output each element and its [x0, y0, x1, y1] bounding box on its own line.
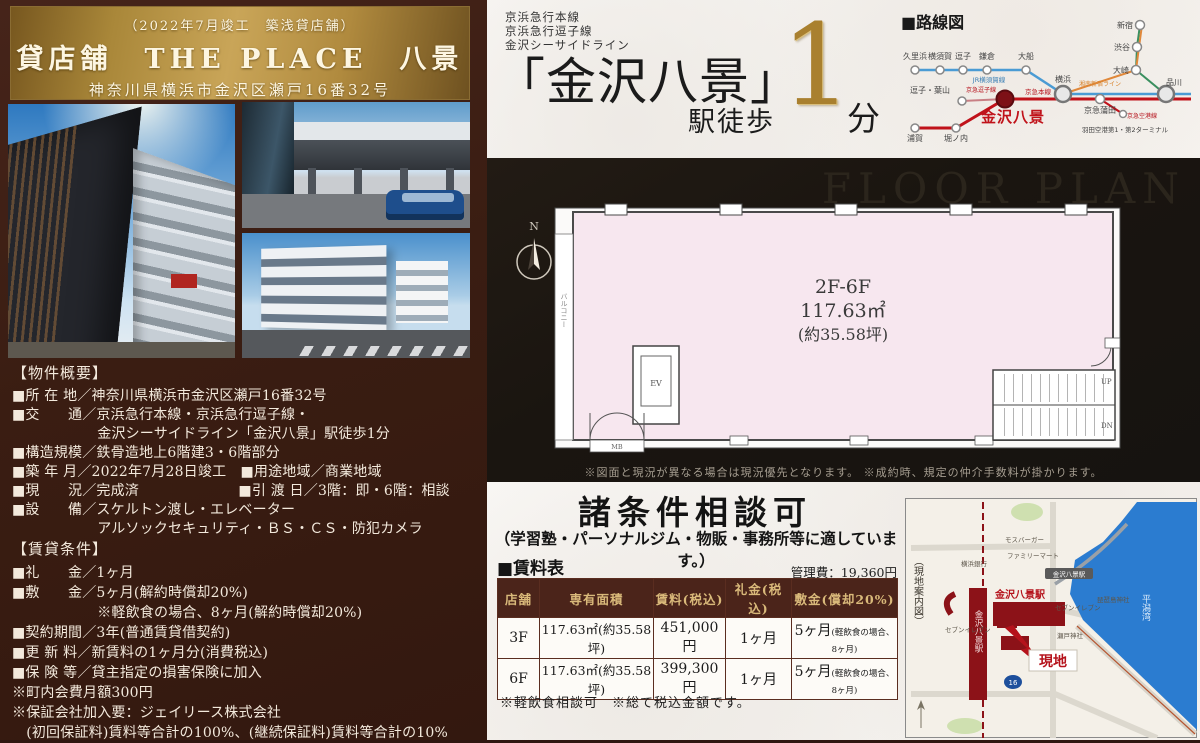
completion-note: （2022年7月竣工 築浅貸店舗） [11, 15, 469, 34]
kanazawa-hakkei-dot [997, 91, 1014, 108]
svg-text:117.63㎡: 117.63㎡ [800, 299, 885, 322]
cell-rent: 451,000円 [654, 618, 726, 659]
svg-text:横須賀: 横須賀 [928, 51, 952, 61]
property-overview-section: 【物件概要】 ■所 在 地／神奈川県横浜市金沢区瀬戸16番32号 ■交 通／京浜… [12, 362, 482, 539]
svg-text:逗子: 逗子 [955, 52, 971, 61]
svg-text:堀ノ内: 堀ノ内 [944, 133, 968, 143]
zushi-line-label: 京急逗子線 [966, 86, 996, 94]
walk-label: 駅徒歩 [688, 100, 775, 139]
svg-text:瀬戸神社: 瀬戸神社 [1057, 631, 1084, 640]
overview-line: ■現 況／完成済 ■引 渡 日／3階：即・6階：相談 [12, 482, 482, 501]
kanazawa-hakkei-label: 金沢八景 [980, 108, 1045, 126]
overview-line: ■構造規模／鉄骨造地上6階建3・6階部分 [12, 444, 482, 463]
stairs-up-label: UP [1101, 378, 1112, 386]
terms-line: ■敷 金／5ヶ月(解約時償却20%) [12, 583, 482, 603]
site-label: 現地 [1039, 653, 1067, 670]
station-building-band [272, 122, 470, 140]
overview-line: ■交 通／京浜急行本線・京浜急行逗子線・ [12, 406, 482, 425]
tower-louvers [8, 124, 80, 358]
floor-plan-panel: FLOOR PLAN N バルコニ [487, 158, 1200, 482]
walk-minutes-unit: 分 [847, 92, 880, 140]
svg-text:横浜銀行: 横浜銀行 [961, 559, 988, 568]
floorplan-disclaimer: ※図面と現況が異なる場合は現況優先となります。 ※成約時、規定の仲介手数料が掛か… [487, 464, 1200, 480]
rent-table-header-row: 店舗 専有面積 賃料(税込) 礼金(税込) 敷金(償却20%) [498, 579, 898, 618]
site-building-shape [997, 616, 1017, 628]
main-line-label: 京急本線 [1025, 87, 1052, 96]
cell-deposit: 5ヶ月(軽飲食の場合、8ヶ月) [792, 659, 898, 700]
station-label: 金沢八景駅 [994, 588, 1046, 601]
entry-opening [1105, 338, 1120, 348]
property-photo-station [242, 102, 470, 228]
svg-text:セブンイレブン: セブンイレブン [1055, 603, 1101, 612]
overview-line: 金沢シーサイドライン「金沢八景」駅徒歩1分 [12, 425, 482, 444]
col-rent: 賃料(税込) [654, 579, 726, 618]
svg-text:渋谷: 渋谷 [1114, 42, 1130, 52]
mb-label: MB [611, 443, 623, 451]
property-title-plate: （2022年7月竣工 築浅貸店舗） 貸店舗 THE PLACE 八景 神奈川県横… [10, 6, 470, 100]
cell-floor: 3F [498, 618, 540, 659]
overview-line: ■築 年 月／2022年7月28日竣工 ■用途地域／商業地域 [12, 463, 482, 482]
overview-line: アルソックセキュリティ・ＢＳ・ＣＳ・防犯カメラ [12, 520, 482, 539]
car-windows [402, 193, 454, 202]
balcony-label: バルコニー [560, 293, 568, 328]
deposit-months: 5ヶ月 [795, 623, 832, 639]
elevator-label: EV [650, 379, 662, 388]
terms-line: ■保 険 等／貸主指定の損害保険に加入 [12, 663, 482, 683]
table-row: 3F 117.63㎡(約35.58坪) 451,000円 1ヶ月 5ヶ月(軽飲食… [498, 618, 898, 659]
svg-text:京急蒲田: 京急蒲田 [1084, 105, 1116, 115]
svg-text:新宿: 新宿 [1117, 20, 1133, 30]
property-photo-streetview [242, 233, 470, 358]
airport-line-label: 京急空港線 [1127, 112, 1157, 120]
col-keymoney: 礼金(税込) [726, 579, 792, 618]
office-building-shape [261, 245, 386, 331]
stair-flight-upper [1001, 374, 1107, 402]
stair-flight-lower [1001, 408, 1107, 436]
deposit-months: 5ヶ月 [795, 664, 832, 680]
access-header-strip: 京浜急行本線 京浜急行逗子線 金沢シーサイドライン 「金沢八景」 駅徒歩 1 分… [487, 0, 1200, 158]
street-ground [8, 342, 235, 358]
svg-text:鎌倉: 鎌倉 [979, 51, 995, 61]
shinagawa-hub-dot [1158, 86, 1174, 102]
svg-text:浦賀: 浦賀 [907, 133, 923, 143]
bay-label: 平潟湾 [1140, 594, 1151, 622]
terms-line: ■礼 金／1ヶ月 [12, 563, 482, 583]
svg-text:モスバーガー: モスバーガー [1005, 535, 1044, 544]
route-shield-number: 16 [1009, 679, 1018, 687]
overview-line: ■所 在 地／神奈川県横浜市金沢区瀬戸16番32号 [12, 387, 482, 406]
overview-title: 【物件概要】 [12, 362, 482, 383]
cell-area: 117.63㎡(約35.58坪) [540, 618, 654, 659]
left-panel: （2022年7月竣工 築浅貸店舗） 貸店舗 THE PLACE 八景 神奈川県横… [0, 0, 487, 740]
svg-text:ファミリーマート: ファミリーマート [1007, 552, 1059, 560]
deposit-note: (軽飲食の場合、8ヶ月) [832, 669, 895, 696]
rent-table: 店舗 専有面積 賃料(税込) 礼金(税込) 敷金(償却20%) 3F 117.6… [497, 578, 898, 700]
route-map: ■路線図 久里浜 横須賀 逗子 鎌倉 [893, 2, 1198, 152]
cell-keymoney: 1ヶ月 [726, 618, 792, 659]
svg-text:大船: 大船 [1018, 51, 1034, 61]
compass-north-label: N [529, 220, 539, 233]
svg-text:琵琶島神社: 琵琶島神社 [1097, 595, 1130, 604]
col-area: 専有面積 [540, 579, 654, 618]
adjacent-building-shape [133, 148, 235, 358]
yokohama-hub-dot [1055, 86, 1071, 102]
conditions-strip: 諸条件相談可 （学習塾・パーソナルジム・物販・事務所等に適しています。） ■賃料… [487, 482, 1200, 740]
svg-text:逗子・葉山: 逗子・葉山 [910, 85, 950, 95]
cell-deposit: 5ヶ月(軽飲食の場合、8ヶ月) [792, 618, 898, 659]
svg-text:2F-6F: 2F-6F [815, 276, 871, 298]
shonan-shinjuku-label: 湘南新宿ライン [1079, 80, 1121, 88]
terms-line: ■更 新 料／新賃料の1ヶ月分(消費税込) [12, 643, 482, 663]
property-title: 貸店舗 THE PLACE 八景 [11, 37, 469, 76]
red-signage [171, 274, 197, 288]
col-deposit: 敷金(償却20%) [792, 579, 898, 618]
walk-minutes-number: 1 [781, 6, 852, 126]
location-map: 金沢八景駅 金沢八景駅 金沢八景駅 現地 モスバーガー ファミリーマート 横浜銀… [905, 498, 1197, 738]
svg-text:久里浜: 久里浜 [903, 51, 927, 61]
terms-line: ※保証会社加入要：ジェイリース株式会社 [12, 703, 482, 723]
svg-text:(約35.58坪): (約35.58坪) [798, 325, 888, 344]
crosswalk-stripes [299, 346, 470, 356]
floor-plan-drawing: バルコニー EV MB UP DN [545, 198, 1130, 460]
rent-table-notes: ※軽飲食相談可 ※総て税込金額です。 [500, 692, 751, 711]
glass-building [242, 102, 294, 198]
flyer-page: （2022年7月竣工 築浅貸店舗） 貸店舗 THE PLACE 八景 神奈川県横… [0, 0, 1200, 740]
deposit-note: (軽飲食の場合、8ヶ月) [832, 628, 895, 655]
balcony-strip [555, 234, 573, 440]
terms-title: 【賃貸条件】 [12, 538, 482, 559]
seaside-station-label: 金沢八景駅 [1053, 570, 1086, 579]
property-photo-exterior [8, 104, 235, 358]
terms-line: ■契約期間／3年(普通賃貸借契約) [12, 623, 482, 643]
building-tower-shape [8, 107, 142, 358]
terms-line: (初回保証料)賃料等合計の100%、(継続保証料)賃料等合計の10% [12, 723, 482, 743]
overview-line: ■設 備／スケルトン渡し・エレベーター [12, 501, 482, 520]
svg-text:大崎: 大崎 [1113, 65, 1129, 75]
train-line: 京浜急行逗子線 [505, 24, 630, 38]
col-floor: 店舗 [498, 579, 540, 618]
train-line: 京浜急行本線 [505, 10, 630, 24]
lease-terms-section: 【賃貸条件】 ■礼 金／1ヶ月 ■敷 金／5ヶ月(解約時償却20%) ※軽飲食の… [12, 538, 482, 743]
terms-line: ※軽飲食の場合、8ヶ月(解約時償却20%) [12, 603, 482, 623]
terms-line: ※町内会費月額300円 [12, 683, 482, 703]
svg-text:品川: 品川 [1166, 78, 1182, 87]
svg-text:横浜: 横浜 [1055, 74, 1071, 84]
map-caption: （現地案内図） [912, 556, 924, 626]
svg-text:セブンイレブン: セブンイレブン [945, 625, 991, 634]
haneda-label: 羽田空港第1・第2ターミナル [1082, 125, 1169, 134]
routemap-title: ■路線図 [901, 13, 964, 32]
yokosuka-line-label: JR横須賀線 [972, 75, 1006, 84]
secondary-building-shape [396, 261, 448, 323]
property-address: 神奈川県横浜市金沢区瀬戸16番32号 [11, 79, 469, 100]
stairs-down-label: DN [1101, 422, 1113, 430]
